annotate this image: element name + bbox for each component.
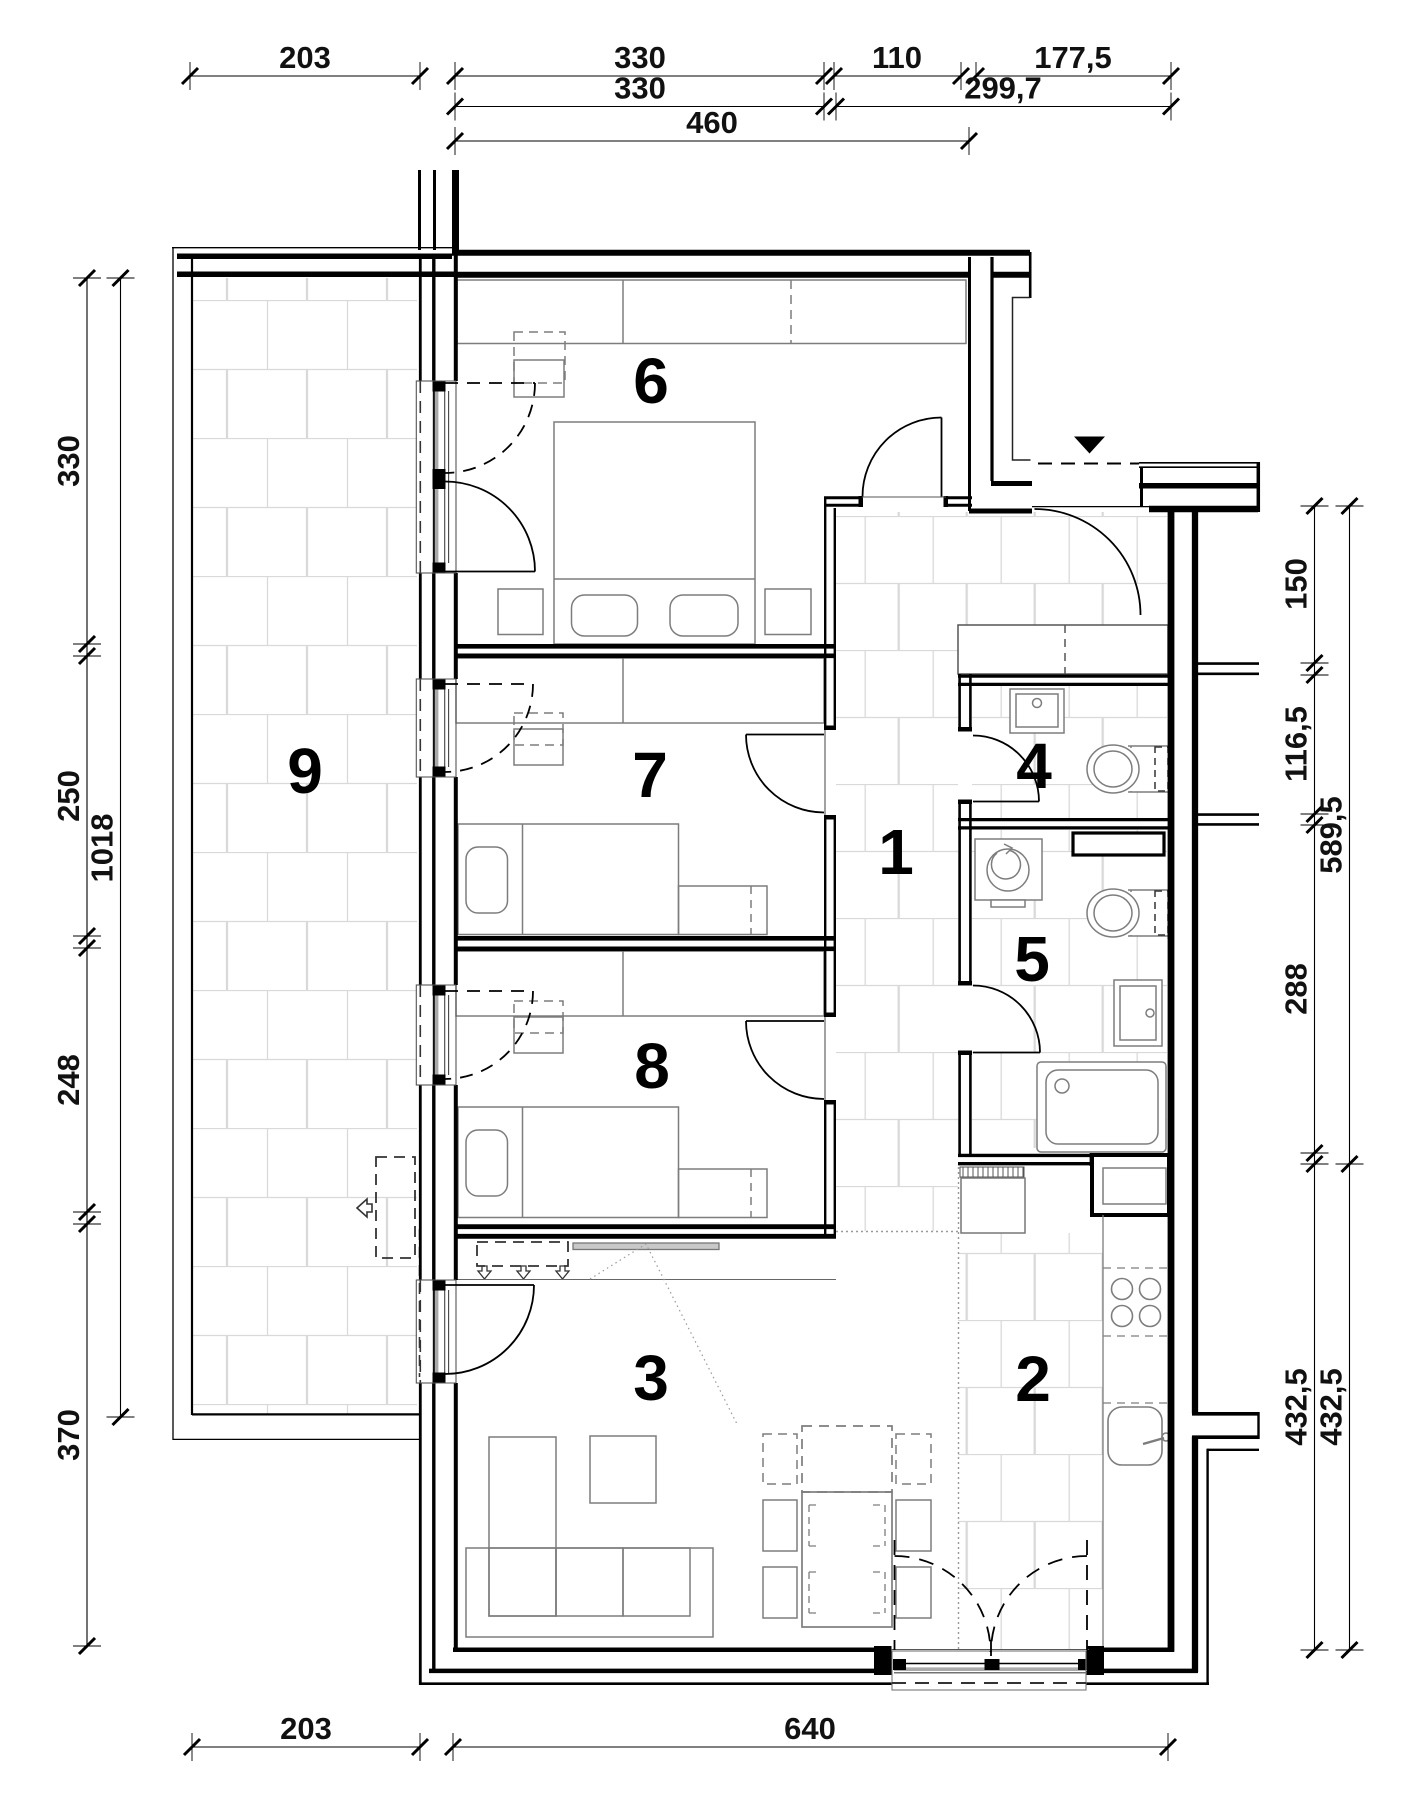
svg-text:640: 640	[784, 1711, 836, 1746]
svg-text:7: 7	[632, 739, 668, 811]
svg-text:9: 9	[287, 735, 323, 807]
svg-text:116,5: 116,5	[1279, 706, 1314, 782]
svg-text:2: 2	[1015, 1343, 1051, 1415]
svg-text:110: 110	[872, 40, 922, 75]
svg-text:432,5: 432,5	[1314, 1368, 1349, 1446]
svg-text:370: 370	[51, 1409, 86, 1461]
svg-text:330: 330	[614, 71, 666, 106]
svg-text:6: 6	[633, 345, 669, 417]
svg-text:203: 203	[279, 40, 331, 75]
svg-text:150: 150	[1279, 558, 1314, 610]
svg-text:589,5: 589,5	[1314, 796, 1349, 874]
svg-text:288: 288	[1279, 963, 1314, 1015]
svg-text:1018: 1018	[85, 814, 120, 883]
svg-text:1: 1	[878, 816, 914, 888]
svg-text:203: 203	[280, 1711, 332, 1746]
svg-text:4: 4	[1016, 730, 1052, 802]
svg-text:177,5: 177,5	[1034, 40, 1112, 75]
svg-text:330: 330	[51, 435, 86, 487]
svg-text:432,5: 432,5	[1279, 1368, 1314, 1446]
svg-text:248: 248	[51, 1054, 86, 1106]
svg-text:5: 5	[1014, 923, 1050, 995]
svg-text:250: 250	[51, 770, 86, 822]
svg-text:3: 3	[633, 1342, 669, 1414]
svg-text:8: 8	[634, 1030, 670, 1102]
svg-text:299,7: 299,7	[964, 71, 1042, 106]
svg-text:460: 460	[686, 105, 738, 140]
